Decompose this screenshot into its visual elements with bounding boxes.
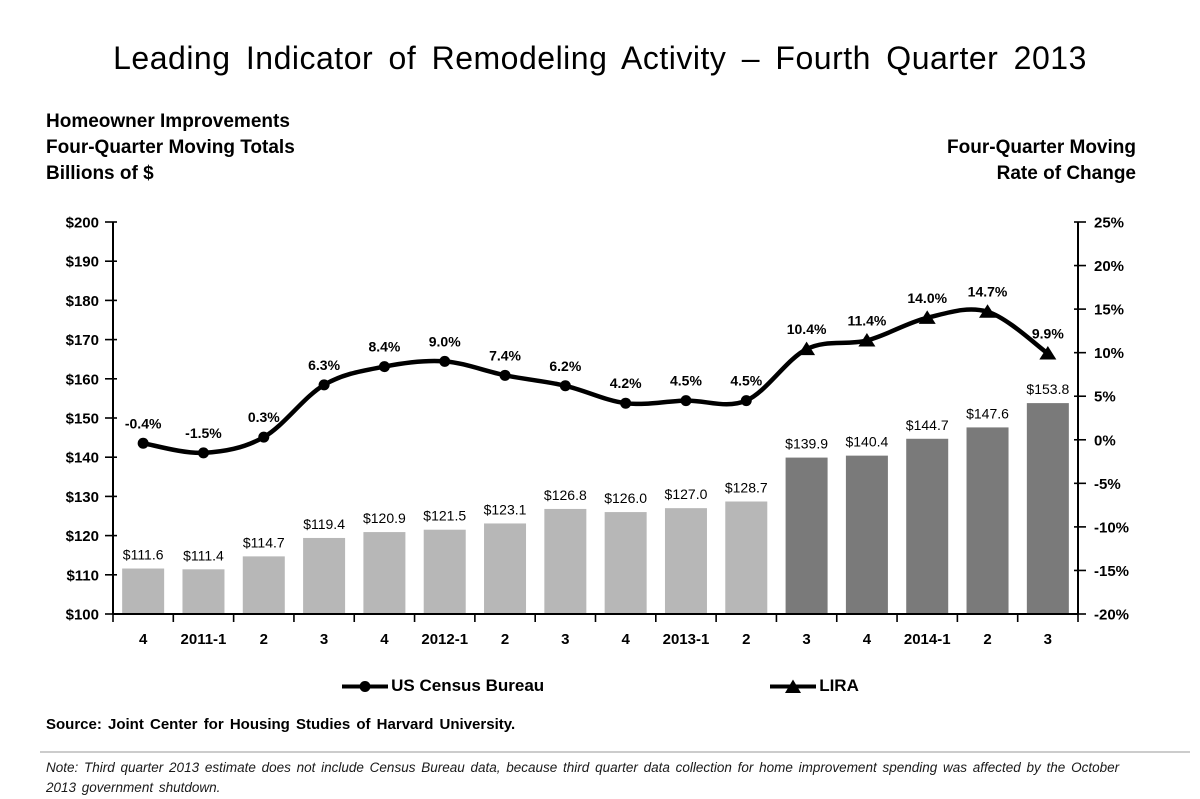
left-axis-tick-label: $190 <box>66 254 99 271</box>
lira-point-label: 14.0% <box>907 290 947 306</box>
left-axis-tick-label: $170 <box>66 332 99 349</box>
census-point-label: -1.5% <box>185 425 222 441</box>
census-point-label: 8.4% <box>368 339 400 355</box>
legend-label-lira: LIRA <box>819 676 859 696</box>
census-point-label: 0.3% <box>248 409 280 425</box>
x-axis-category-label: 3 <box>320 631 328 648</box>
bar-value-label: $123.1 <box>484 501 527 517</box>
census-point-label: 7.4% <box>489 347 521 363</box>
x-axis-category-label: 2014-1 <box>904 631 951 648</box>
left-axis-tick-label: $160 <box>66 371 99 388</box>
slide-canvas: Leading Indicator of Remodeling Activity… <box>0 0 1200 799</box>
x-axis-category-label: 2 <box>501 631 509 648</box>
x-axis-category-label: 4 <box>621 631 630 648</box>
right-axis-tick-label: -20% <box>1094 607 1129 624</box>
left-axis-tick-label: $120 <box>66 528 99 545</box>
census-point-marker <box>500 370 511 381</box>
bar <box>363 532 405 614</box>
left-axis-tick-label: $130 <box>66 489 99 506</box>
bar-value-label: $127.0 <box>665 486 708 502</box>
lira-point-label: 10.4% <box>787 321 827 337</box>
bar-value-label: $119.4 <box>303 516 345 532</box>
footer-divider <box>40 751 1190 753</box>
right-axis-tick-label: -5% <box>1094 476 1121 493</box>
census-point-label: 6.2% <box>549 358 581 374</box>
bar-value-label: $126.8 <box>544 487 587 503</box>
right-axis-tick-label: 5% <box>1094 389 1116 406</box>
lira-line-triangle-icon <box>769 679 817 694</box>
bar-value-label: $144.7 <box>906 417 949 433</box>
x-axis-category-label: 3 <box>561 631 569 648</box>
bar-value-label: $120.9 <box>363 510 406 526</box>
bar <box>424 530 466 614</box>
bar <box>967 427 1009 614</box>
census-point-marker <box>741 395 752 406</box>
footnote-text: Note: Third quarter 2013 estimate does n… <box>46 758 1136 797</box>
x-axis-category-label: 4 <box>863 631 872 648</box>
census-point-marker <box>258 432 269 443</box>
left-axis-tick-label: $180 <box>66 293 99 310</box>
bar <box>1027 403 1069 614</box>
census-point-label: 6.3% <box>308 357 340 373</box>
right-axis-tick-label: 10% <box>1094 345 1124 362</box>
bar-value-label: $140.4 <box>845 434 888 450</box>
bar <box>303 538 345 614</box>
census-point-label: 4.5% <box>670 373 702 389</box>
census-point-label: 9.0% <box>429 333 461 349</box>
legend-item-census: US Census Bureau <box>341 676 544 696</box>
bar <box>725 501 767 614</box>
lira-point-label: 9.9% <box>1032 326 1064 342</box>
left-axis-tick-label: $100 <box>66 607 99 624</box>
x-axis-category-label: 4 <box>139 631 148 648</box>
census-point-label: 4.2% <box>610 375 642 391</box>
bar <box>544 509 586 614</box>
x-axis-category-label: 2013-1 <box>663 631 710 648</box>
census-point-label: -0.4% <box>125 415 162 431</box>
bar-value-label: $147.6 <box>966 405 1009 421</box>
bar <box>605 512 647 614</box>
right-axis-tick-label: -15% <box>1094 563 1129 580</box>
right-axis-tick-label: 25% <box>1094 215 1124 232</box>
legend-item-lira: LIRA <box>769 676 859 696</box>
x-axis-category-label: 3 <box>1044 631 1052 648</box>
census-point-marker <box>620 398 631 409</box>
right-axis-tick-label: 20% <box>1094 258 1124 275</box>
bar-value-label: $114.7 <box>243 534 285 550</box>
bar-value-label: $128.7 <box>725 479 768 495</box>
source-text: Source: Joint Center for Housing Studies… <box>46 716 515 733</box>
bar <box>786 458 828 614</box>
census-point-marker <box>680 395 691 406</box>
legend-label-census: US Census Bureau <box>391 676 544 696</box>
x-axis-category-label: 2011-1 <box>181 631 227 648</box>
bar-value-label: $111.6 <box>123 547 164 563</box>
bar-value-label: $153.8 <box>1026 381 1069 397</box>
left-axis-tick-label: $110 <box>66 567 99 584</box>
census-line-circle-icon <box>341 679 389 694</box>
x-axis-category-label: 4 <box>380 631 389 648</box>
x-axis-category-label: 2012-1 <box>421 631 468 648</box>
bar-value-label: $111.4 <box>183 547 224 563</box>
bar-value-label: $126.0 <box>604 490 647 506</box>
bar <box>122 569 164 614</box>
census-point-marker <box>439 356 450 367</box>
bar <box>484 523 526 614</box>
right-axis-tick-label: 15% <box>1094 302 1124 319</box>
x-axis-category-label: 2 <box>260 631 268 648</box>
bar <box>182 569 224 614</box>
bar <box>243 556 285 614</box>
x-axis-category-label: 2 <box>742 631 750 648</box>
lira-point-label: 14.7% <box>968 284 1008 300</box>
census-point-marker <box>379 361 390 372</box>
bar <box>906 439 948 614</box>
census-point-marker <box>560 380 571 391</box>
x-axis-category-label: 2 <box>983 631 991 648</box>
bar <box>665 508 707 614</box>
chart-legend: US Census Bureau LIRA <box>0 676 1200 696</box>
bar <box>846 456 888 614</box>
census-point-label: 4.5% <box>730 373 762 389</box>
lira-point-label: 11.4% <box>847 312 886 328</box>
left-axis-tick-label: $200 <box>66 215 99 232</box>
right-axis-tick-label: 0% <box>1094 432 1116 449</box>
census-point-marker <box>198 447 209 458</box>
left-axis-tick-label: $140 <box>66 450 99 467</box>
census-point-marker <box>138 438 149 449</box>
left-axis-tick-label: $150 <box>66 411 99 428</box>
bar-value-label: $139.9 <box>785 436 828 452</box>
bar-value-label: $121.5 <box>423 508 466 524</box>
x-axis-category-label: 3 <box>802 631 810 648</box>
right-axis-tick-label: -10% <box>1094 519 1129 536</box>
census-point-marker <box>319 379 330 390</box>
